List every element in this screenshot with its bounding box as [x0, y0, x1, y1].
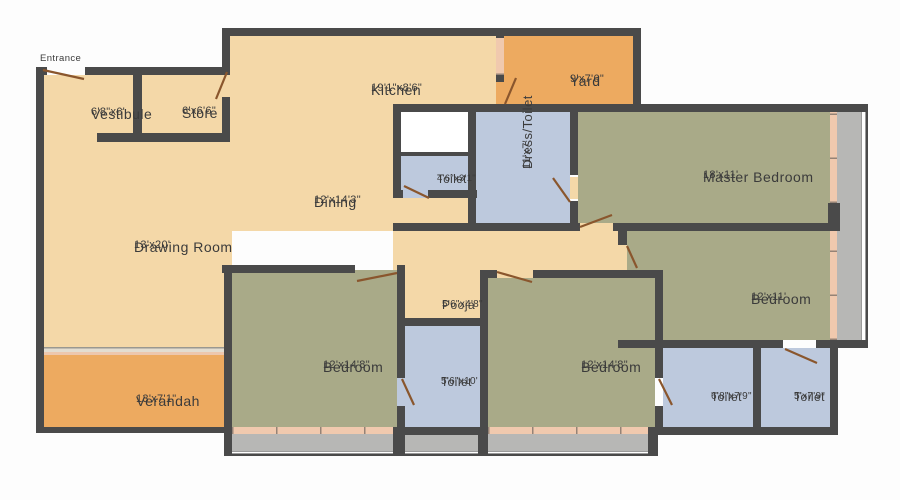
- room-dims: 4'6"x3'1": [437, 174, 476, 185]
- room-dims: 12'x14'8": [581, 359, 628, 372]
- door-bedroom-center: [497, 272, 532, 282]
- door-toilet-5x7-9: [785, 349, 817, 363]
- room-dims: 12'x14'3": [314, 194, 361, 207]
- door-yard: [505, 78, 516, 104]
- room-dims: 5'6"x4'8": [442, 299, 483, 311]
- room-dims: 5'x7'9": [794, 391, 825, 403]
- door-master-bedroom: [580, 215, 612, 227]
- entrance-label: Entrance: [40, 53, 81, 64]
- room-dims: 9'x7'6": [570, 73, 604, 86]
- room-dims: 11'x7': [521, 140, 534, 169]
- door-toilet-6-8: [659, 379, 672, 405]
- room-dims: 5'6"x10': [441, 376, 478, 388]
- room-dims: 6'8"x7'9": [711, 391, 752, 403]
- door-bedroom-left: [357, 273, 397, 281]
- door-entrance: [43, 70, 84, 79]
- door-store: [216, 72, 227, 99]
- room-dims: 18'x11': [703, 169, 738, 182]
- room-dims: 13'x20': [134, 239, 170, 252]
- door-bedroom-12x11: [627, 246, 637, 268]
- room-dims: 12'x14'8": [323, 359, 370, 372]
- room-dims: 6'8"x6': [91, 106, 125, 119]
- room-dims: 13'x7'1": [136, 393, 176, 406]
- door-dress-toilet: [553, 178, 570, 202]
- room-dims: 19'1"x8'6": [371, 82, 422, 95]
- room-dims: 6'x6'6": [182, 105, 216, 118]
- door-toilet-4-6: [404, 186, 429, 198]
- door-toilet-5-6: [402, 379, 414, 405]
- room-dims: 12'x11': [751, 291, 786, 304]
- floor-plan: Entrance Vestibule 6'8"x6' Store 6'x6'6"…: [0, 0, 900, 500]
